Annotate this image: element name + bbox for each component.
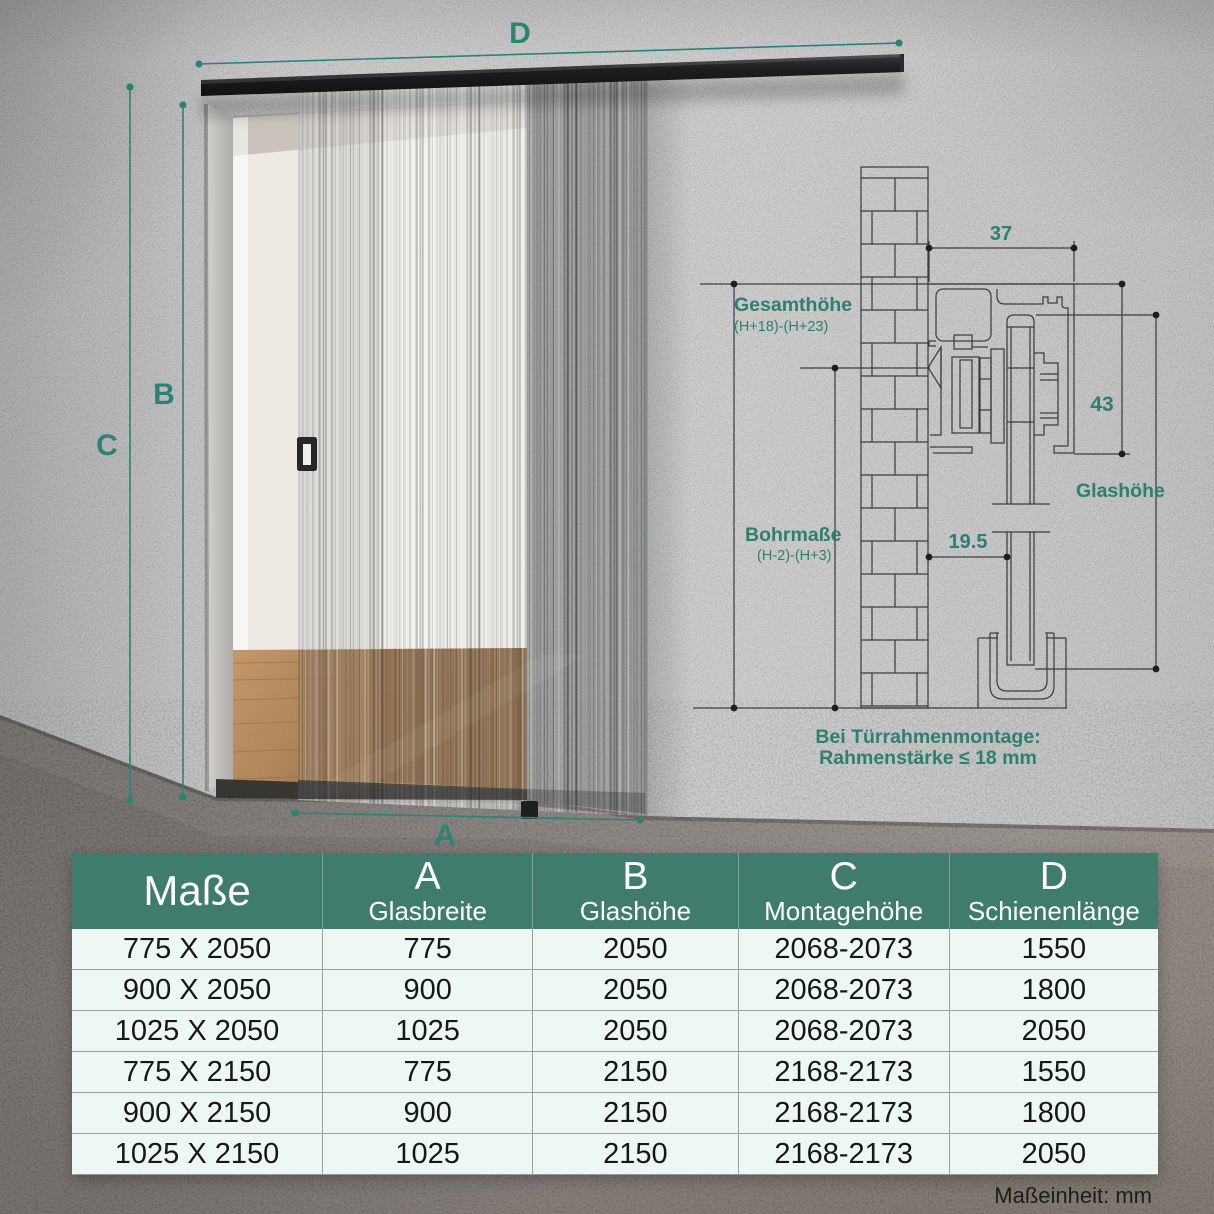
svg-text:Rahmenstärke ≤ 18 mm: Rahmenstärke ≤ 18 mm (819, 747, 1037, 769)
svg-text:(H-2)-(H+3): (H-2)-(H+3) (757, 548, 832, 564)
svg-text:43: 43 (1090, 393, 1113, 416)
svg-text:Glashöhe: Glashöhe (1076, 480, 1165, 502)
svg-text:37: 37 (990, 223, 1012, 245)
svg-text:Bohrmaße: Bohrmaße (745, 524, 842, 546)
svg-text:Gesamthöhe: Gesamthöhe (734, 294, 852, 316)
svg-text:19.5: 19.5 (949, 531, 988, 553)
svg-text:Bei Türrahmenmontage:: Bei Türrahmenmontage: (815, 726, 1040, 748)
svg-text:(H+18)-(H+23): (H+18)-(H+23) (734, 319, 828, 335)
